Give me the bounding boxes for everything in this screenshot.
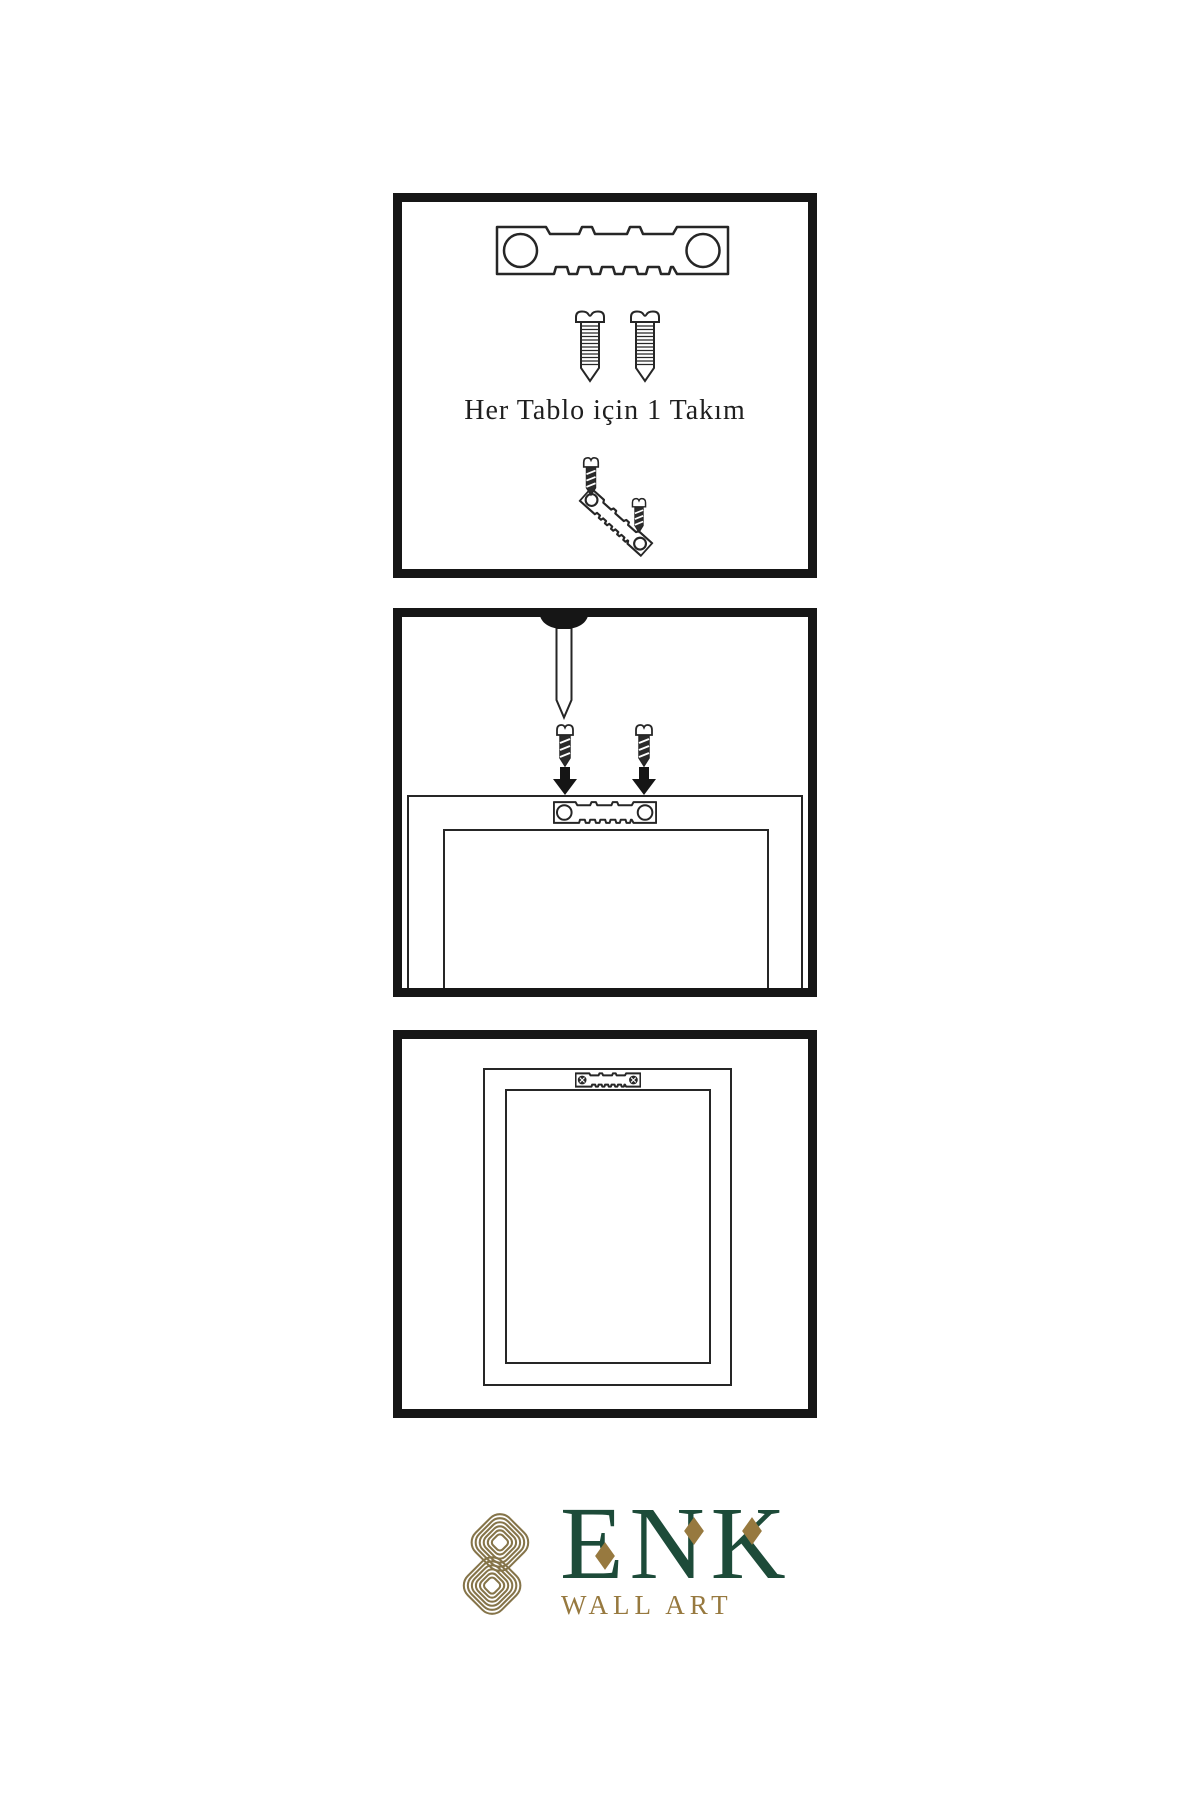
arrow-down-icon — [553, 767, 577, 795]
screw-icon — [573, 308, 607, 384]
mounted-hanger-icon — [575, 1071, 641, 1089]
screw-dark-icon — [633, 722, 655, 768]
screw-dark-icon — [630, 496, 648, 534]
sawtooth-hanger-icon — [553, 800, 657, 825]
step-panel-mounting — [393, 608, 817, 997]
frame-inner-outline — [443, 829, 769, 997]
wall-nail-icon — [540, 616, 588, 720]
screw-dark-icon — [554, 722, 576, 768]
screw-icon — [628, 308, 662, 384]
kit-caption: Her Tablo için 1 Takım — [402, 395, 808, 427]
sawtooth-hanger-icon — [495, 223, 730, 278]
brand-subtitle: WALL ART — [561, 1592, 733, 1619]
screw-dark-icon — [581, 455, 601, 497]
brand-name: ENK — [560, 1492, 792, 1596]
step-panel-result — [393, 1030, 817, 1418]
frame-inner-outline — [505, 1089, 711, 1364]
step-panel-kit: Her Tablo için 1 Takım — [393, 193, 817, 578]
arrow-down-icon — [632, 767, 656, 795]
instruction-sheet: Her Tablo için 1 Takım — [0, 0, 1200, 1800]
knot-logo-icon — [447, 1503, 545, 1625]
